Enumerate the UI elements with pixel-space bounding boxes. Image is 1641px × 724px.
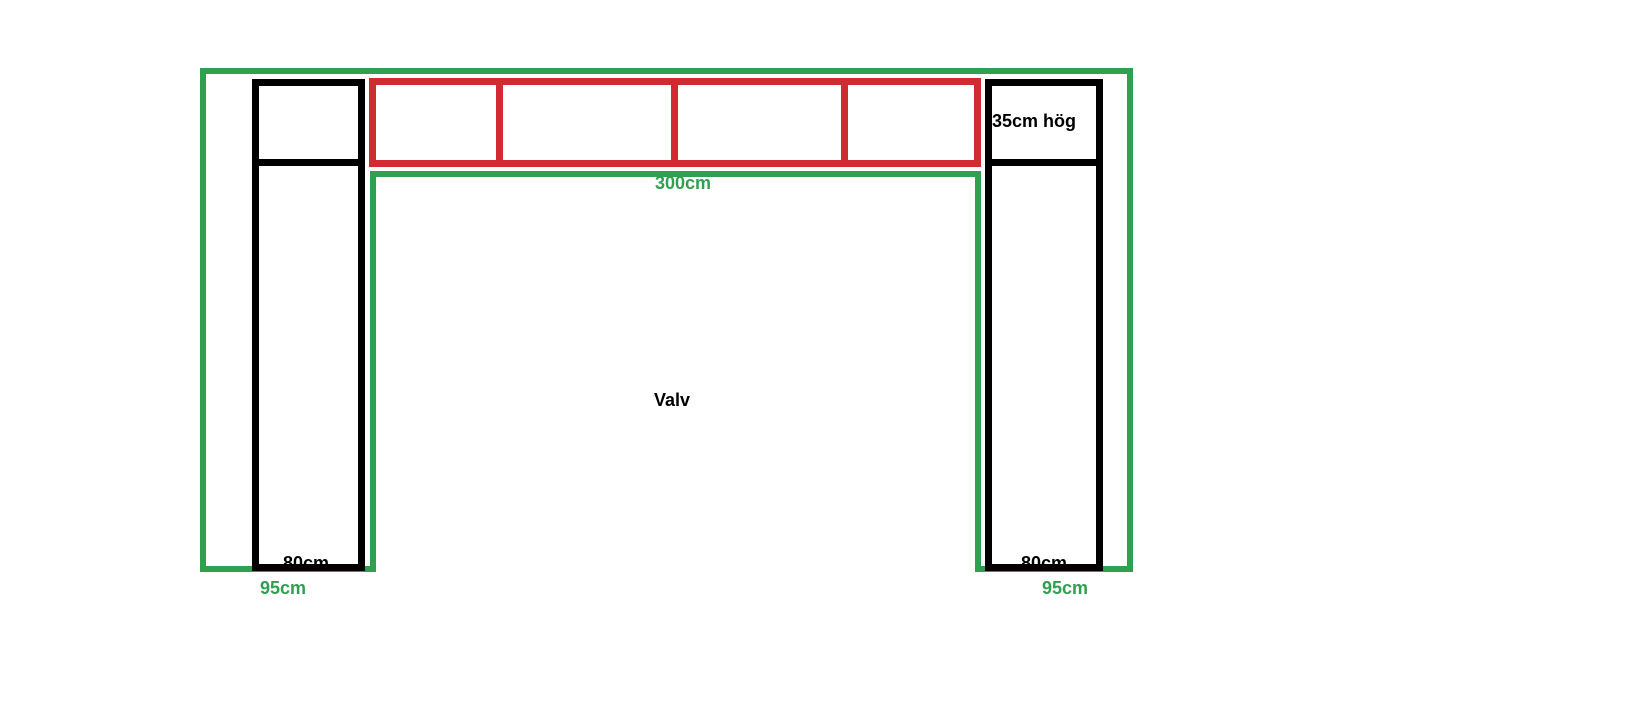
green-inner-right-line: [975, 171, 981, 572]
red-shelf-divider-1: [496, 85, 503, 160]
shelf-height-label: 35cm hög: [992, 112, 1076, 130]
red-shelf-divider-2: [671, 85, 678, 160]
right-total-width-label: 95cm: [1042, 579, 1088, 597]
right-column-divider: [992, 159, 1096, 166]
diagram-canvas: 35cm hög 300cm Valv 80cm 95cm 80cm 95cm: [0, 0, 1641, 724]
opening-name-label: Valv: [654, 391, 690, 409]
red-shelf-divider-3: [841, 85, 848, 160]
red-shelf-outline: [369, 78, 981, 167]
left-column-divider: [259, 159, 358, 166]
right-pillar-width-label: 80cm: [1021, 554, 1067, 572]
left-total-width-label: 95cm: [260, 579, 306, 597]
green-outer-top-line: [200, 68, 1133, 74]
green-outer-left-line: [200, 68, 206, 572]
green-outer-right-line: [1127, 68, 1133, 572]
green-inner-left-line: [370, 171, 376, 572]
right-wall-column: [985, 79, 1103, 571]
span-width-label: 300cm: [655, 174, 711, 192]
left-pillar-width-label: 80cm: [283, 554, 329, 572]
left-wall-column: [252, 79, 365, 571]
